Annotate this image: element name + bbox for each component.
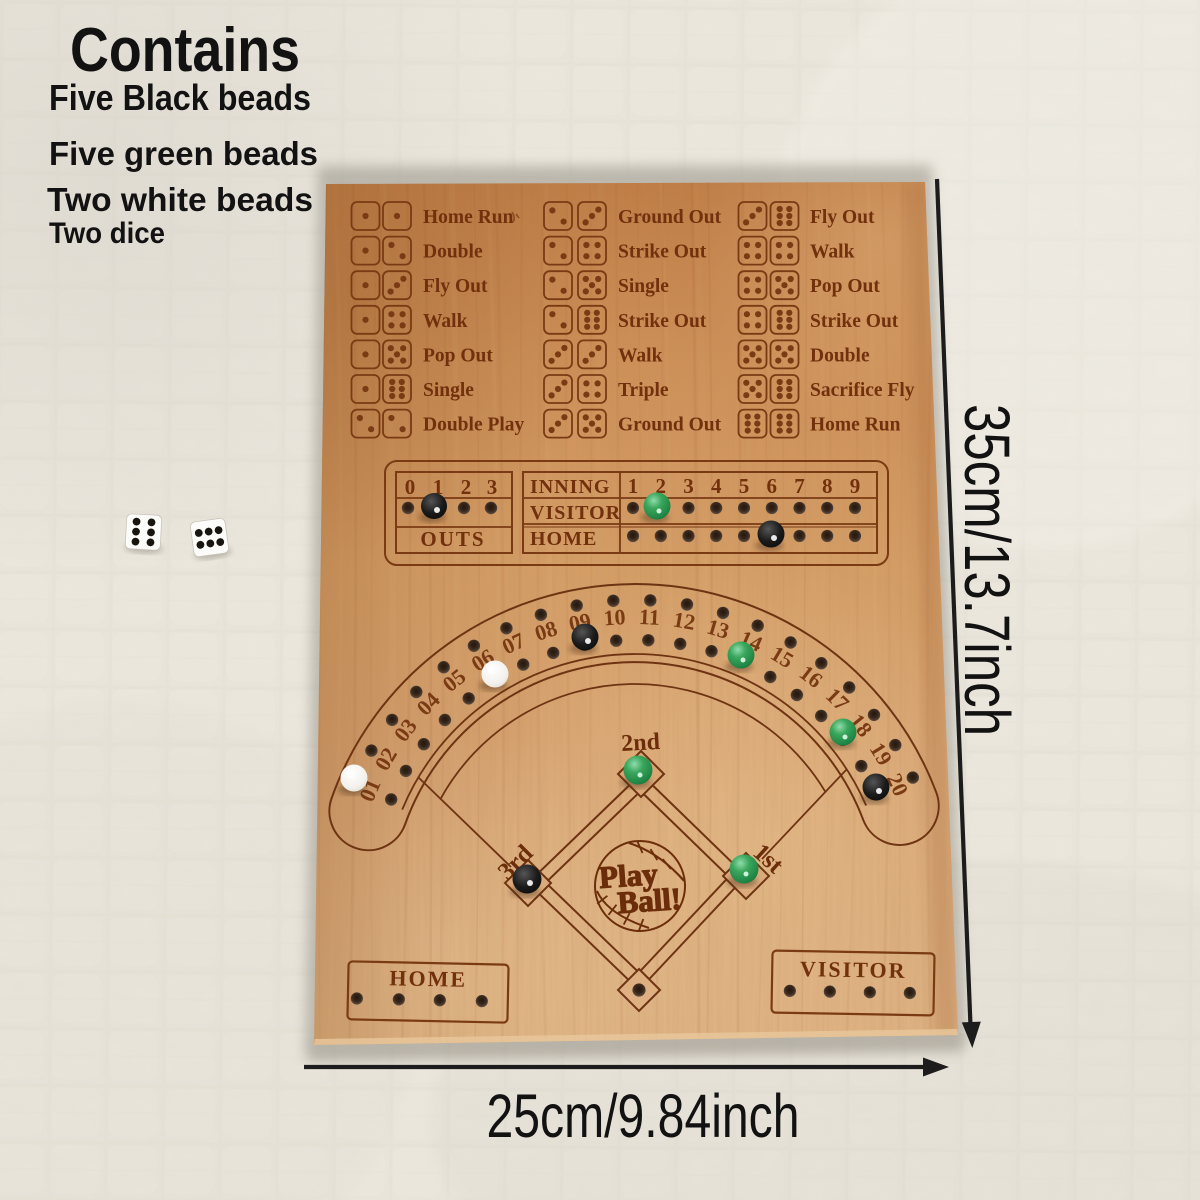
svg-text:Two dice: Two dice: [49, 217, 165, 250]
svg-text:Contains: Contains: [70, 16, 300, 85]
svg-text:Strike Out: Strike Out: [810, 311, 899, 332]
svg-text:12: 12: [671, 607, 697, 635]
svg-text:Five Black beads: Five Black beads: [49, 77, 311, 118]
svg-text:8: 8: [822, 474, 833, 498]
svg-text:VISITOR: VISITOR: [800, 956, 907, 983]
svg-text:Pop Out: Pop Out: [423, 345, 493, 366]
svg-text:Home Run: Home Run: [423, 207, 514, 228]
svg-text:10: 10: [603, 604, 627, 631]
svg-text:1: 1: [628, 474, 639, 498]
svg-text:Ground Out: Ground Out: [618, 415, 722, 436]
svg-text:Ground Out: Ground Out: [618, 207, 722, 228]
svg-text:35cm/13.7inch: 35cm/13.7inch: [951, 404, 1023, 736]
svg-text:2: 2: [461, 475, 472, 499]
svg-text:HOME: HOME: [530, 528, 597, 550]
svg-text:2nd: 2nd: [621, 729, 662, 757]
svg-text:3: 3: [683, 474, 694, 498]
svg-text:VISITOR: VISITOR: [530, 502, 621, 524]
svg-text:3: 3: [487, 475, 498, 499]
svg-text:9: 9: [850, 474, 861, 498]
svg-text:Walk: Walk: [423, 311, 468, 332]
svg-text:6: 6: [767, 474, 778, 498]
svg-text:Two white beads: Two white beads: [47, 182, 313, 219]
svg-text:7: 7: [794, 474, 805, 498]
svg-text:5: 5: [739, 474, 750, 498]
svg-text:Single: Single: [423, 380, 474, 401]
svg-text:Triple: Triple: [618, 380, 669, 401]
svg-text:Fly Out: Fly Out: [810, 207, 875, 228]
svg-text:Pop Out: Pop Out: [810, 276, 880, 297]
svg-text:OUTS: OUTS: [420, 527, 485, 551]
svg-text:HOME: HOME: [389, 965, 467, 992]
svg-text:Walk: Walk: [810, 242, 855, 263]
svg-text:11: 11: [638, 604, 660, 630]
svg-text:0: 0: [405, 475, 416, 499]
svg-text:Double Play: Double Play: [423, 415, 525, 436]
svg-text:Strike Out: Strike Out: [618, 311, 707, 332]
svg-text:Walk: Walk: [618, 345, 663, 366]
svg-text:Ball!: Ball!: [616, 881, 682, 920]
svg-text:Strike Out: Strike Out: [618, 242, 707, 263]
svg-text:4: 4: [711, 474, 722, 498]
svg-text:Fly Out: Fly Out: [423, 276, 488, 297]
svg-text:25cm/9.84inch: 25cm/9.84inch: [487, 1082, 800, 1150]
svg-text:Double: Double: [423, 242, 483, 263]
svg-text:Single: Single: [618, 276, 669, 297]
svg-text:Double: Double: [810, 345, 870, 366]
svg-text:Sacrifice Fly: Sacrifice Fly: [810, 380, 915, 401]
svg-text:Five green beads: Five green beads: [49, 135, 318, 172]
svg-text:Home Run: Home Run: [810, 415, 901, 436]
svg-text:INNING: INNING: [530, 476, 610, 498]
